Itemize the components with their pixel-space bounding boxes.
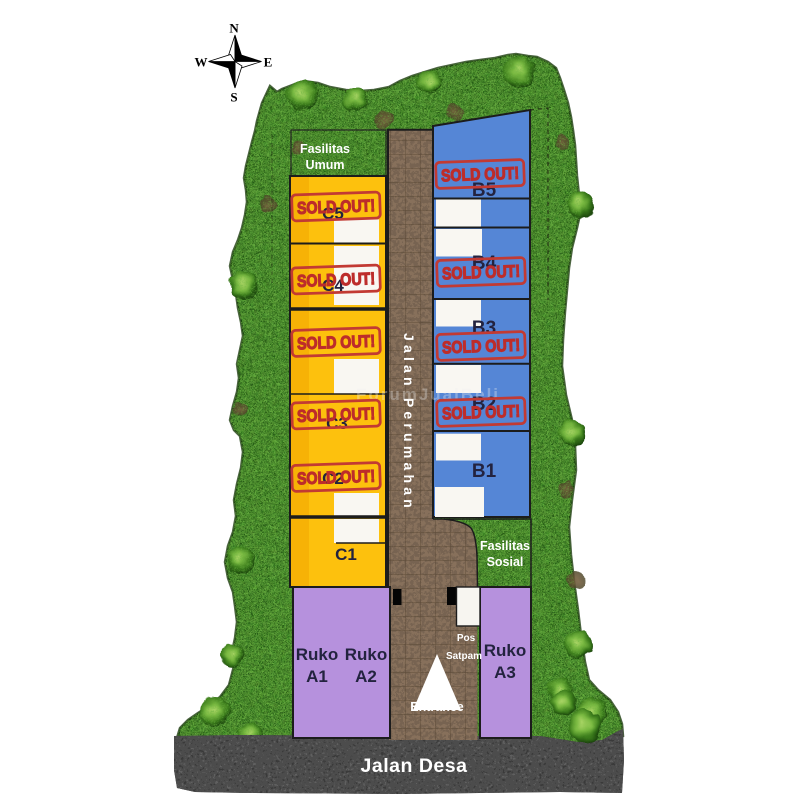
svg-text:S: S [230,90,237,105]
svg-text:Sosial: Sosial [487,555,524,569]
svg-text:Umum: Umum [306,158,345,172]
svg-text:A2: A2 [355,667,377,686]
svg-text:SOLD OUT!: SOLD OUT! [442,336,521,358]
svg-text:N: N [229,21,239,36]
svg-text:W: W [195,55,208,70]
svg-text:C1: C1 [335,545,357,564]
svg-text:A3: A3 [494,663,516,682]
svg-text:Fasilitas: Fasilitas [480,539,530,553]
svg-text:B1: B1 [472,461,497,482]
svg-text:SOLD OUT!: SOLD OUT! [442,402,521,424]
svg-text:Ruko: Ruko [296,645,339,664]
svg-text:SOLD OUT!: SOLD OUT! [297,332,376,354]
svg-text:Fasilitas: Fasilitas [300,142,350,156]
svg-text:Jalan Perumahan: Jalan Perumahan [401,333,417,512]
svg-text:Satpam: Satpam [446,651,482,662]
svg-text:A1: A1 [306,667,328,686]
svg-text:SOLD OUT!: SOLD OUT! [297,404,376,426]
svg-text:Entrance: Entrance [410,700,464,714]
svg-text:Ruko: Ruko [345,645,388,664]
svg-text:Pos: Pos [457,633,476,644]
svg-text:SOLD OUT!: SOLD OUT! [297,467,376,489]
svg-text:SOLD OUT!: SOLD OUT! [297,196,376,218]
svg-text:SOLD OUT!: SOLD OUT! [297,269,376,291]
svg-text:SOLD OUT!: SOLD OUT! [441,164,520,186]
svg-text:E: E [264,55,273,70]
svg-text:Jalan Desa: Jalan Desa [361,755,468,777]
svg-text:Ruko: Ruko [484,641,527,660]
svg-text:SOLD OUT!: SOLD OUT! [442,262,521,284]
